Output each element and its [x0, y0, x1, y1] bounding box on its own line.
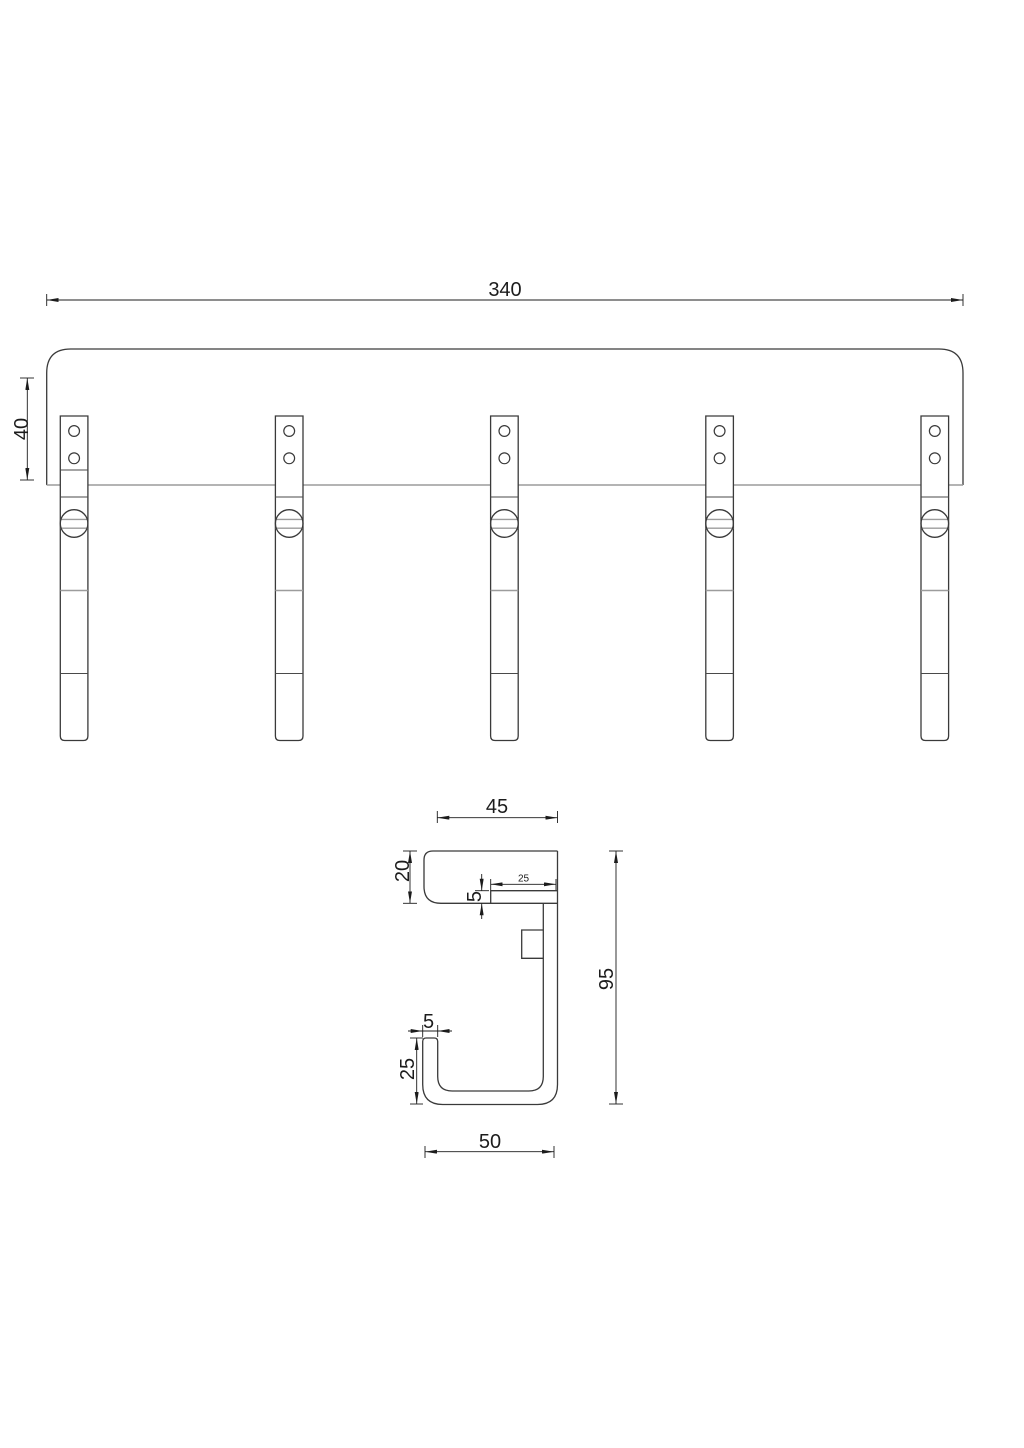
- dim-label-overall-height: 95: [596, 968, 618, 990]
- dimension-arm-thickness: 5: [464, 874, 489, 919]
- dimension-tip-height: 25: [397, 1038, 423, 1104]
- hook-strap-2: [275, 416, 303, 741]
- hook-strap-1: [60, 416, 88, 741]
- dim-label-arm-thickness: 5: [464, 891, 486, 902]
- dimension-hook-depth: 50: [425, 1131, 554, 1158]
- dimension-rail-height: 40: [11, 378, 34, 480]
- dim-label-rail-depth: 45: [486, 796, 508, 818]
- technical-drawing-canvas: 340 40 45 20: [0, 0, 1024, 1448]
- dimension-rail-depth: 45: [437, 796, 557, 823]
- hook-profile-outline: [423, 851, 558, 1105]
- hook-strap-5: [921, 416, 949, 741]
- dim-label-rail-thickness: 20: [392, 860, 414, 882]
- dim-label-tip-height: 25: [397, 1058, 419, 1080]
- hook-strap-4: [706, 416, 734, 741]
- dim-label-overall-width: 340: [488, 279, 521, 301]
- front-view: 340 40: [11, 279, 963, 741]
- hook-arm-outline: [491, 891, 558, 904]
- dimension-overall-height: 95: [596, 851, 623, 1104]
- screw-boss-outline: [522, 930, 544, 958]
- dim-label-arm-length: 25: [518, 874, 530, 885]
- side-view: 45 20 25 5 95: [392, 796, 623, 1158]
- dimension-arm-length: 25: [491, 874, 556, 891]
- dim-label-rail-height: 40: [11, 418, 33, 440]
- dimension-rail-thickness: 20: [392, 851, 417, 903]
- drawing-sheet: 340 40 45 20: [0, 0, 1024, 1448]
- hook-strap-3: [491, 416, 519, 741]
- dimension-tip-thickness: 5: [408, 1011, 452, 1037]
- dimension-overall-width: 340: [47, 279, 963, 306]
- dim-label-hook-depth: 50: [479, 1131, 501, 1153]
- dim-label-tip-thickness: 5: [423, 1011, 434, 1033]
